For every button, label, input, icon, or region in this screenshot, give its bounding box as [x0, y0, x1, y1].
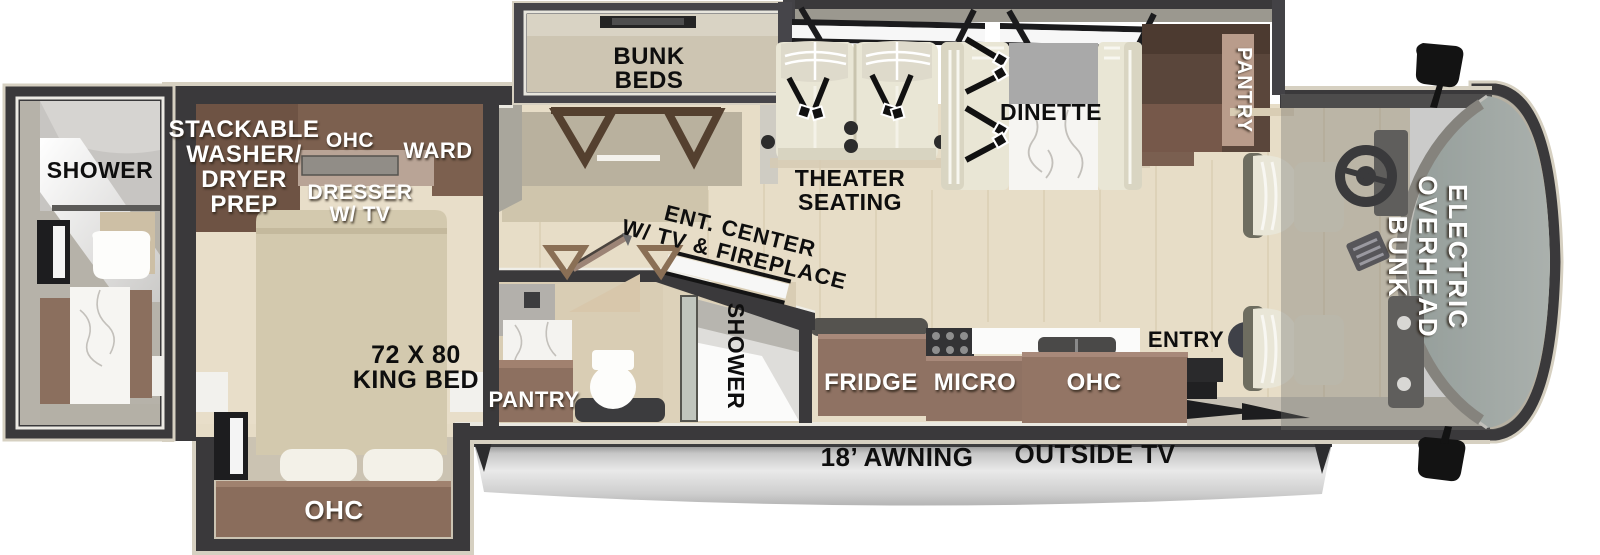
svg-text:18’ AWNING: 18’ AWNING: [821, 442, 974, 472]
svg-text:PANTRY: PANTRY: [1233, 47, 1255, 133]
svg-text:W/ TV: W/ TV: [330, 203, 391, 226]
svg-text:72 X 80: 72 X 80: [371, 341, 461, 369]
svg-text:KING BED: KING BED: [353, 366, 479, 394]
svg-text:DRYER: DRYER: [201, 166, 287, 193]
svg-text:STACKABLE: STACKABLE: [169, 116, 320, 143]
svg-text:PANTRY: PANTRY: [489, 387, 580, 412]
svg-text:PREP: PREP: [210, 191, 277, 218]
svg-text:BEDS: BEDS: [615, 67, 684, 94]
svg-text:SHOWER: SHOWER: [723, 303, 749, 410]
svg-text:DINETTE: DINETTE: [1000, 99, 1102, 125]
svg-text:FRIDGE: FRIDGE: [824, 369, 918, 396]
svg-text:WARD: WARD: [403, 138, 472, 163]
svg-text:OVERHEAD: OVERHEAD: [1413, 175, 1443, 338]
svg-text:OHC: OHC: [304, 495, 363, 525]
svg-text:THEATER: THEATER: [795, 165, 905, 191]
svg-text:OHC: OHC: [326, 129, 374, 152]
svg-text:DRESSER: DRESSER: [307, 181, 412, 204]
svg-text:BUNK: BUNK: [613, 43, 684, 70]
svg-text:OHC: OHC: [1067, 369, 1122, 396]
svg-text:MICRO: MICRO: [934, 369, 1017, 396]
svg-text:ELECTRIC: ELECTRIC: [1443, 184, 1473, 330]
svg-text:SHOWER: SHOWER: [47, 157, 154, 183]
svg-text:OUTSIDE TV: OUTSIDE TV: [1014, 439, 1175, 469]
svg-text:ENTRY: ENTRY: [1148, 327, 1224, 352]
svg-text:SEATING: SEATING: [798, 189, 902, 215]
svg-text:BUNK: BUNK: [1383, 215, 1413, 298]
svg-text:WASHER/: WASHER/: [186, 141, 302, 168]
